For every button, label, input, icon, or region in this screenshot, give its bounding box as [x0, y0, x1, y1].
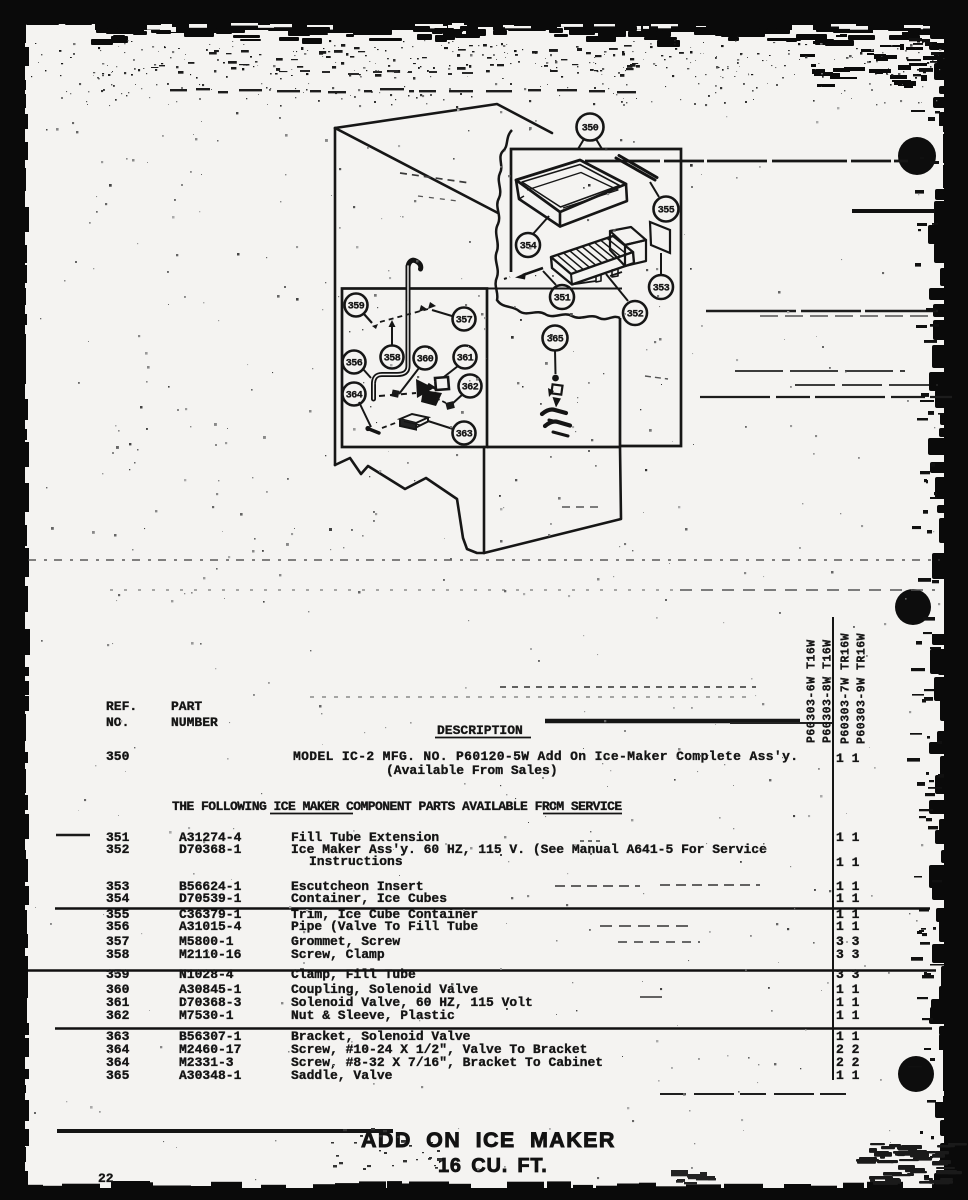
- svg-text:(Available From Sales): (Available From Sales): [386, 763, 558, 778]
- svg-text:1 1: 1 1: [836, 919, 860, 934]
- svg-text:354: 354: [520, 242, 537, 253]
- svg-text:P60303-6W T16W: P60303-6W T16W: [806, 639, 819, 743]
- svg-text:357: 357: [456, 316, 473, 327]
- svg-text:Nut & Sleeve, Plastic: Nut & Sleeve, Plastic: [291, 1008, 455, 1023]
- svg-text:N1028-4: N1028-4: [179, 967, 234, 982]
- svg-text:3 3: 3 3: [836, 947, 860, 962]
- svg-text:1 1: 1 1: [836, 751, 860, 766]
- svg-text:16 CU. FT.: 16 CU. FT.: [438, 1155, 548, 1177]
- svg-text:1 1: 1 1: [836, 855, 860, 870]
- svg-text:THE FOLLOWING ICE MAKER COMPON: THE FOLLOWING ICE MAKER COMPONENT PARTS …: [172, 799, 622, 814]
- svg-text:362: 362: [462, 383, 479, 394]
- svg-text:356: 356: [346, 359, 363, 370]
- svg-text:1 1: 1 1: [836, 1008, 860, 1023]
- svg-text:364: 364: [346, 391, 363, 402]
- svg-text:359: 359: [348, 302, 365, 313]
- svg-text:P60303-9W TR16W: P60303-9W TR16W: [856, 633, 869, 744]
- svg-text:358: 358: [106, 947, 130, 962]
- svg-text:A31015-4: A31015-4: [179, 919, 242, 934]
- svg-text:359: 359: [106, 967, 130, 982]
- svg-text:363: 363: [456, 430, 473, 441]
- svg-text:22: 22: [98, 1171, 114, 1186]
- svg-text:1 1: 1 1: [836, 830, 860, 845]
- svg-text:358: 358: [384, 354, 401, 365]
- svg-text:353: 353: [653, 284, 670, 295]
- svg-text:1 1: 1 1: [836, 891, 860, 906]
- svg-text:354: 354: [106, 891, 130, 906]
- svg-text:365: 365: [547, 335, 564, 346]
- svg-text:365: 365: [106, 1068, 130, 1083]
- svg-text:1 1: 1 1: [836, 1068, 860, 1083]
- svg-text:REF.: REF.: [106, 699, 137, 714]
- svg-text:PART: PART: [171, 699, 202, 714]
- svg-text:NUMBER: NUMBER: [171, 715, 218, 730]
- svg-text:Container, Ice Cubes: Container, Ice Cubes: [291, 891, 447, 906]
- svg-text:355: 355: [658, 206, 675, 217]
- svg-text:P60303-7W TR16W: P60303-7W TR16W: [840, 633, 853, 744]
- svg-text:M7530-1: M7530-1: [179, 1008, 234, 1023]
- svg-text:3 3: 3 3: [836, 967, 860, 982]
- svg-text:D70539-1: D70539-1: [179, 891, 242, 906]
- svg-text:360: 360: [417, 355, 434, 366]
- svg-text:ADD ON ICE MAKER: ADD ON ICE MAKER: [361, 1128, 616, 1152]
- svg-text:D70368-1: D70368-1: [179, 842, 242, 857]
- svg-text:Clamp, Fill Tube: Clamp, Fill Tube: [291, 967, 416, 982]
- svg-text:NO.: NO.: [106, 715, 129, 730]
- svg-text:DESCRIPTION: DESCRIPTION: [437, 723, 523, 738]
- svg-text:350: 350: [106, 749, 130, 764]
- svg-text:361: 361: [457, 354, 474, 365]
- svg-text:350: 350: [582, 124, 599, 135]
- svg-text:362: 362: [106, 1008, 130, 1023]
- svg-text:351: 351: [554, 294, 571, 305]
- svg-text:352: 352: [627, 310, 644, 321]
- svg-text:356: 356: [106, 919, 130, 934]
- svg-text:Saddle, Valve: Saddle, Valve: [291, 1068, 393, 1083]
- svg-text:A30348-1: A30348-1: [179, 1068, 242, 1083]
- svg-text:Instructions: Instructions: [309, 854, 403, 869]
- svg-text:352: 352: [106, 842, 130, 857]
- svg-text:Screw, Clamp: Screw, Clamp: [291, 947, 385, 962]
- svg-text:M2110-16: M2110-16: [179, 947, 242, 962]
- svg-text:Pipe (Valve To Fill Tube: Pipe (Valve To Fill Tube: [291, 919, 478, 934]
- svg-text:MODEL IC-2 MFG. NO. P60120-5W: MODEL IC-2 MFG. NO. P60120-5W Add On Ice…: [293, 749, 798, 764]
